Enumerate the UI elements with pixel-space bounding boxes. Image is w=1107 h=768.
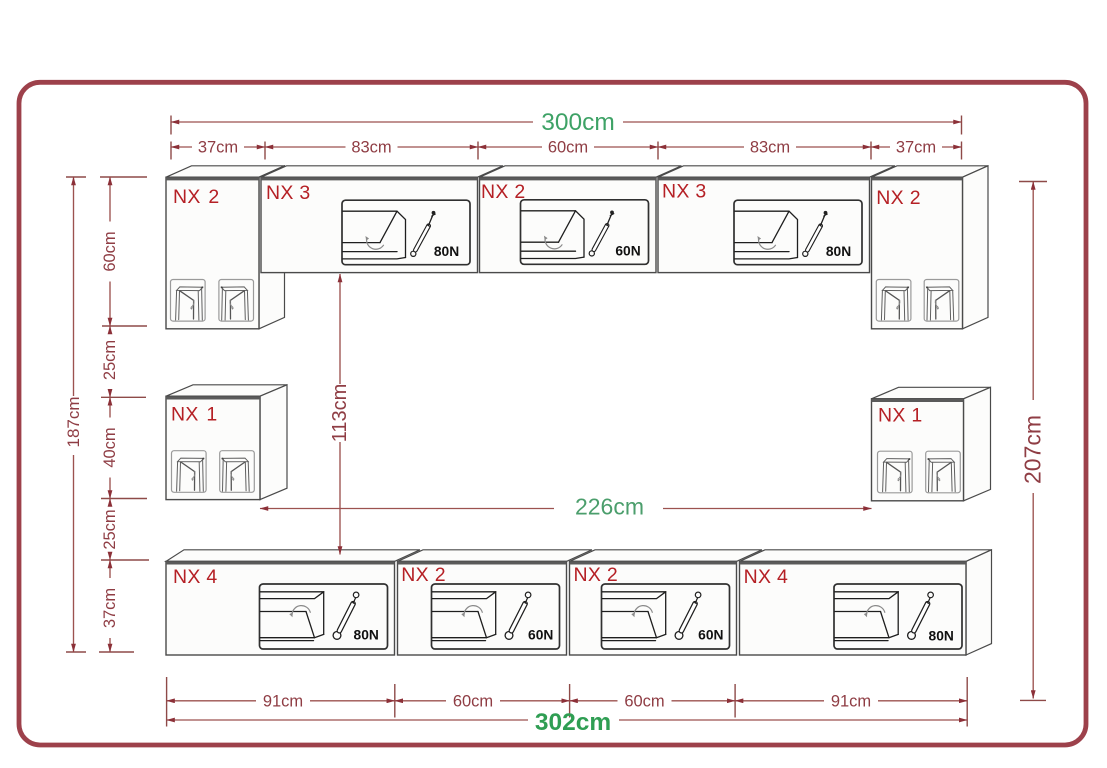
svg-text:NX 3: NX 3 bbox=[266, 182, 311, 204]
svg-text:NX 2: NX 2 bbox=[574, 564, 619, 586]
svg-text:37cm: 37cm bbox=[101, 588, 119, 628]
svg-text:113cm: 113cm bbox=[329, 384, 351, 443]
svg-text:187cm: 187cm bbox=[64, 396, 83, 447]
svg-text:NX 3: NX 3 bbox=[662, 181, 707, 203]
svg-text:83cm: 83cm bbox=[351, 139, 391, 157]
svg-text:25cm: 25cm bbox=[101, 509, 119, 549]
svg-text:37cm: 37cm bbox=[198, 139, 238, 157]
svg-text:NX 2: NX 2 bbox=[173, 186, 220, 208]
svg-text:83cm: 83cm bbox=[750, 139, 790, 157]
svg-text:NX 1: NX 1 bbox=[878, 405, 923, 427]
svg-text:80N: 80N bbox=[826, 244, 851, 259]
svg-text:80N: 80N bbox=[354, 628, 379, 643]
svg-text:NX 1: NX 1 bbox=[171, 404, 218, 426]
svg-text:226cm: 226cm bbox=[575, 494, 644, 520]
svg-text:60cm: 60cm bbox=[101, 231, 119, 271]
svg-text:NX 2: NX 2 bbox=[876, 187, 921, 209]
svg-text:37cm: 37cm bbox=[896, 139, 936, 157]
svg-text:60N: 60N bbox=[615, 244, 640, 259]
svg-text:60N: 60N bbox=[528, 628, 553, 643]
svg-text:207cm: 207cm bbox=[1019, 415, 1045, 484]
svg-text:25cm: 25cm bbox=[101, 340, 119, 380]
svg-text:302cm: 302cm bbox=[535, 709, 611, 736]
svg-text:80N: 80N bbox=[434, 244, 459, 259]
svg-text:60N: 60N bbox=[698, 628, 723, 643]
svg-text:40cm: 40cm bbox=[101, 427, 119, 467]
svg-text:NX 2: NX 2 bbox=[401, 564, 446, 586]
svg-text:NX 2: NX 2 bbox=[481, 181, 526, 203]
svg-text:91cm: 91cm bbox=[263, 692, 303, 710]
svg-text:300cm: 300cm bbox=[541, 109, 615, 136]
svg-text:80N: 80N bbox=[929, 629, 954, 644]
svg-text:NX 4: NX 4 bbox=[173, 566, 218, 588]
svg-text:NX 4: NX 4 bbox=[744, 566, 789, 588]
svg-text:60cm: 60cm bbox=[624, 692, 664, 710]
svg-text:60cm: 60cm bbox=[548, 139, 588, 157]
svg-text:91cm: 91cm bbox=[831, 692, 871, 710]
svg-text:60cm: 60cm bbox=[453, 692, 493, 710]
